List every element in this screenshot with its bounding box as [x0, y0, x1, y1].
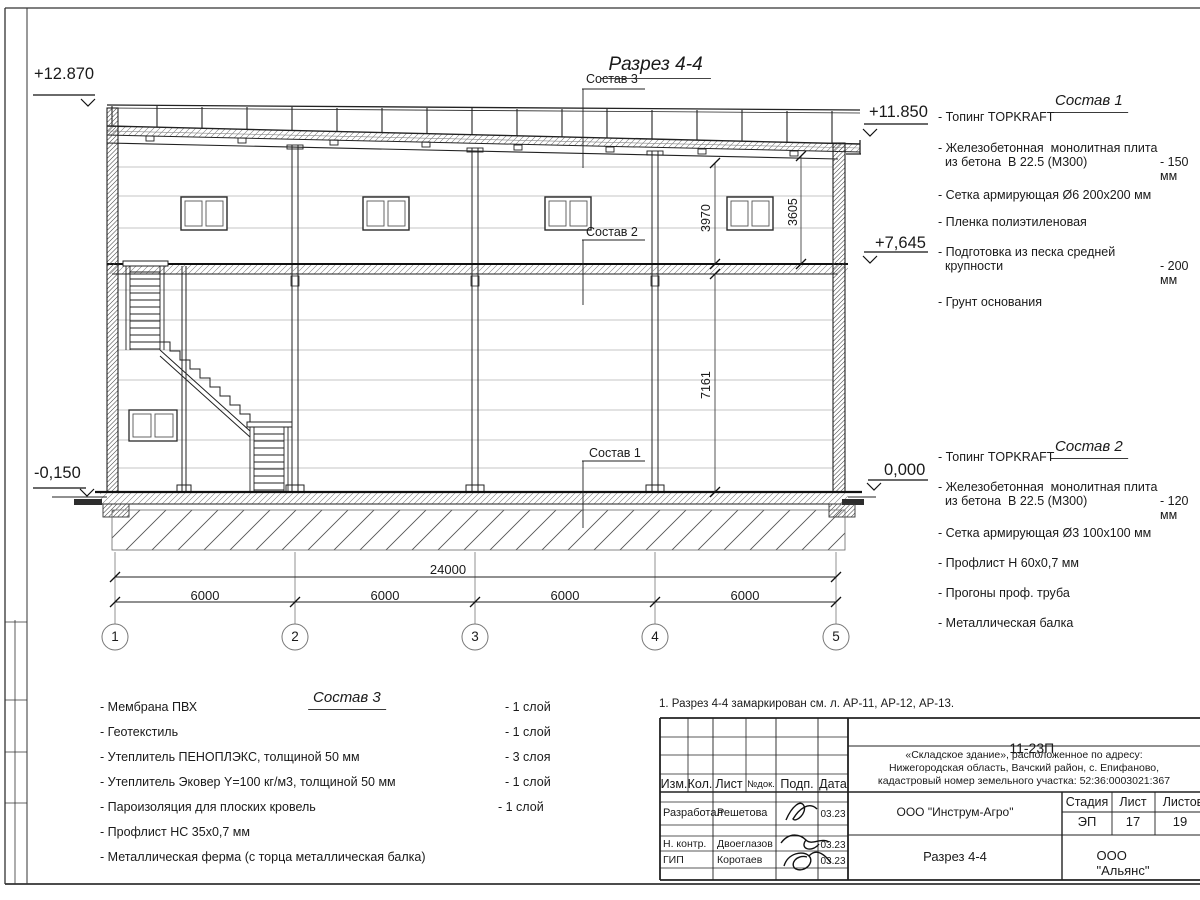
tb-stage-label: Стадия [1066, 795, 1109, 809]
tb-sheets-label: Листов [1163, 795, 1200, 809]
tb-role: Разработал [663, 807, 723, 820]
windows [129, 197, 773, 441]
window-lower [129, 410, 177, 441]
soil-hatch [112, 510, 845, 550]
tb-org: ООО "Инструм-Агро" [897, 806, 1014, 820]
tb-name: Двоеглазов [717, 838, 773, 850]
tb-name: Решетова [717, 807, 767, 820]
sostav2-item: - Сетка армирующая Ø3 100x100 мм [938, 526, 1151, 540]
dim-total: 24000 [430, 563, 466, 578]
window-pair [727, 197, 773, 230]
window-pair [545, 197, 591, 230]
axis-2: 2 [291, 629, 299, 645]
sostav1-item: - Железобетонная монолитная плита из бет… [938, 141, 1157, 170]
elevation-roof-left: +12.870 [34, 65, 94, 84]
roof-structure [107, 105, 861, 159]
tb-name: Коротаев [717, 854, 762, 866]
sostav3-title: Состав 3 [338, 671, 425, 710]
tb-col-data: Дата [819, 777, 847, 791]
sostav2-item: - Металлическая балка [938, 616, 1073, 630]
dim-bay-4: 6000 [731, 589, 760, 604]
tb-role: Н. контр. [663, 838, 706, 850]
dim-7161: 7161 [699, 371, 713, 399]
upper-flight-treads [130, 272, 160, 349]
dim-bay-1: 6000 [191, 589, 220, 604]
tb-sheets: 19 [1173, 815, 1187, 830]
axis-3: 3 [471, 629, 479, 645]
sostav3-item: - Утеплитель Эковер Y=100 кг/м3, толщино… [100, 775, 396, 789]
tb-col-dok: №док. [747, 780, 775, 791]
tb-stage: ЭП [1078, 815, 1097, 830]
sostav2-title: Состав 2 [1080, 420, 1167, 459]
sostav3-item-value: - 1 слой [498, 800, 544, 814]
sostav3-item-value: - 1 слой [505, 700, 551, 714]
sostav2-item: - Железобетонная монолитная плита из бет… [938, 480, 1157, 509]
sostav3-item-value: - 1 слой [505, 775, 551, 789]
axis-5: 5 [832, 629, 840, 645]
sostav3-item: - Профлист НС 35х0,7 мм [100, 825, 250, 839]
tb-company: ООО "Альянс" [1097, 849, 1166, 879]
axis-4: 4 [651, 629, 659, 645]
lower-flight-treads [254, 434, 284, 490]
sostav3-item: - Мембрана ПВХ [100, 700, 197, 714]
elevation-ground: -0,150 [34, 464, 81, 483]
sostav1-item: - Подготовка из песка средней крупности [938, 245, 1115, 274]
window-pair [181, 197, 227, 230]
sostav3-item: - Утеплитель ПЕНОПЛЭКС, толщиной 50 мм [100, 750, 360, 764]
tb-sheet: 17 [1126, 815, 1140, 830]
elevation-roof-right: +11.850 [869, 103, 928, 122]
tb-col-izm: Изм. [661, 777, 688, 791]
right-wall [833, 143, 845, 492]
leader-sostav1: Состав 1 [589, 446, 641, 460]
sostav3-item: - Геотекстиль [100, 725, 178, 739]
dim-3970: 3970 [699, 204, 713, 232]
sostav2-item-value: - 120 мм [1160, 494, 1200, 523]
tb-role: ГИП [663, 854, 684, 866]
dim-bay-2: 6000 [371, 589, 400, 604]
cut-walls [107, 108, 845, 492]
left-wall [107, 108, 118, 492]
sostav1-title: Состав 1 [1080, 74, 1167, 113]
tb-sheet-label: Лист [1119, 795, 1146, 809]
drawing-sheet: Разрез 4-4 +12.870 +11.850 +7,645 0,000 … [0, 0, 1200, 900]
floor2-slab [107, 264, 848, 274]
sostav1-item: - Топинг TOPKRAFT [938, 110, 1054, 124]
tb-date: 03.23 [820, 809, 845, 821]
sostav3-item-value: - 1 слой [505, 725, 551, 739]
window-pair [363, 197, 409, 230]
sostav2-item: - Топинг TOPKRAFT [938, 450, 1054, 464]
sostav1-item: - Пленка полиэтиленовая [938, 215, 1087, 229]
tb-col-list: Лист [715, 777, 742, 791]
leader-sostav2: Состав 2 [586, 225, 638, 239]
sostav1-item-value: - 150 мм [1160, 155, 1200, 184]
elevation-zero: 0,000 [884, 461, 925, 480]
sostav3-item: - Металлическая ферма (с торца металличе… [100, 850, 426, 864]
dim-3605: 3605 [786, 198, 800, 226]
sostav3-item: - Пароизоляция для плоских кровель [100, 800, 316, 814]
tb-date: 03.23 [820, 840, 845, 852]
sostav1-item-value: - 200 мм [1160, 259, 1200, 288]
tb-col-podp: Подп. [780, 777, 813, 791]
dim-bay-3: 6000 [551, 589, 580, 604]
page-title: Разрез 4-4 [645, 32, 766, 79]
sostav2-item: - Профлист Н 60х0,7 мм [938, 556, 1079, 570]
signature-reshetova [786, 803, 817, 820]
titleblock-object: «Складское здание», расположенное по адр… [848, 749, 1200, 787]
axis-1: 1 [111, 629, 119, 645]
sostav3-item-value: - 3 слоя [505, 750, 550, 764]
sheet-note: 1. Разрез 4-4 замаркирован см. л. АР-11,… [659, 698, 954, 711]
tb-date: 03.23 [820, 856, 845, 868]
sostav1-item: - Сетка армирующая Ø6 200x200 мм [938, 188, 1151, 202]
elevation-floor2: +7,645 [875, 234, 926, 253]
sostav1-item: - Грунт основания [938, 295, 1042, 309]
sostav2-item: - Прогоны проф. труба [938, 586, 1070, 600]
tb-drawing-name: Разрез 4-4 [923, 850, 987, 865]
staircase [123, 261, 292, 492]
tb-col-kol: Кол. [688, 777, 713, 791]
leader-sostav3: Состав 3 [586, 72, 638, 86]
